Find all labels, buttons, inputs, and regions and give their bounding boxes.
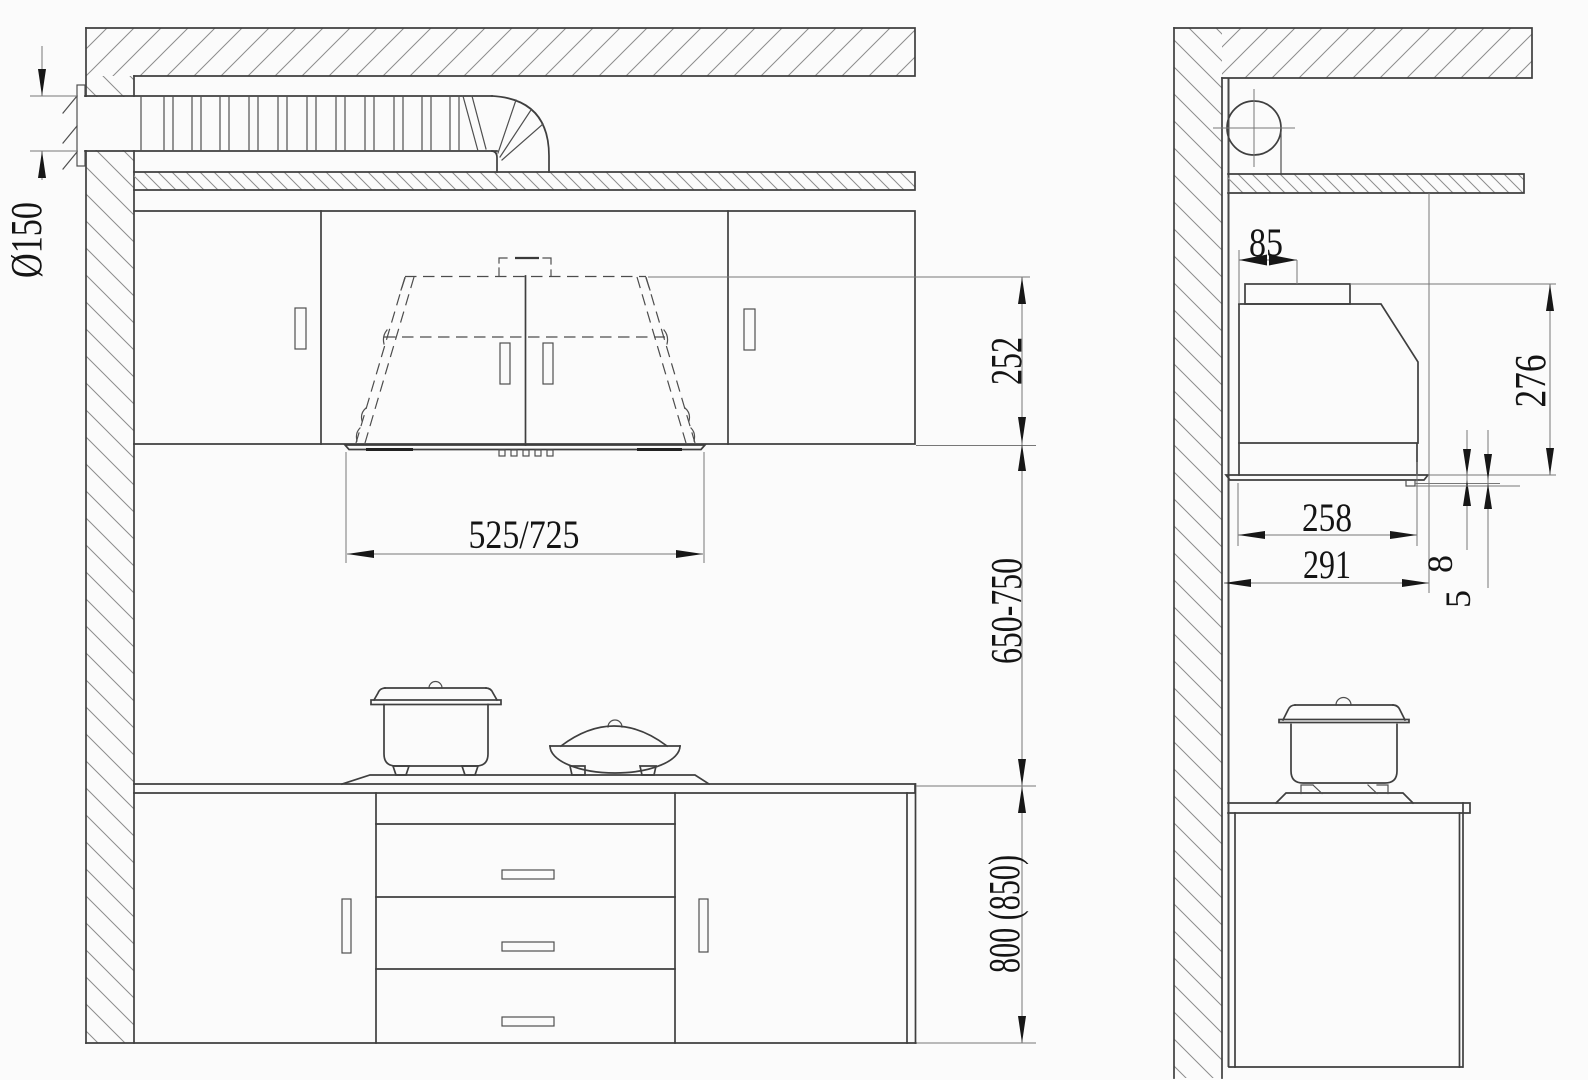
svg-text:Ø150: Ø150 — [2, 202, 51, 278]
svg-text:5: 5 — [1438, 590, 1478, 608]
svg-text:800 (850): 800 (850) — [980, 855, 1029, 973]
svg-text:525/725: 525/725 — [469, 512, 580, 557]
svg-text:650-750: 650-750 — [982, 558, 1031, 664]
svg-text:276: 276 — [1506, 355, 1555, 408]
svg-text:258: 258 — [1302, 495, 1352, 540]
svg-text:252: 252 — [982, 337, 1031, 385]
svg-text:291: 291 — [1303, 542, 1351, 587]
svg-text:8: 8 — [1420, 555, 1460, 573]
svg-text:85: 85 — [1249, 220, 1283, 265]
